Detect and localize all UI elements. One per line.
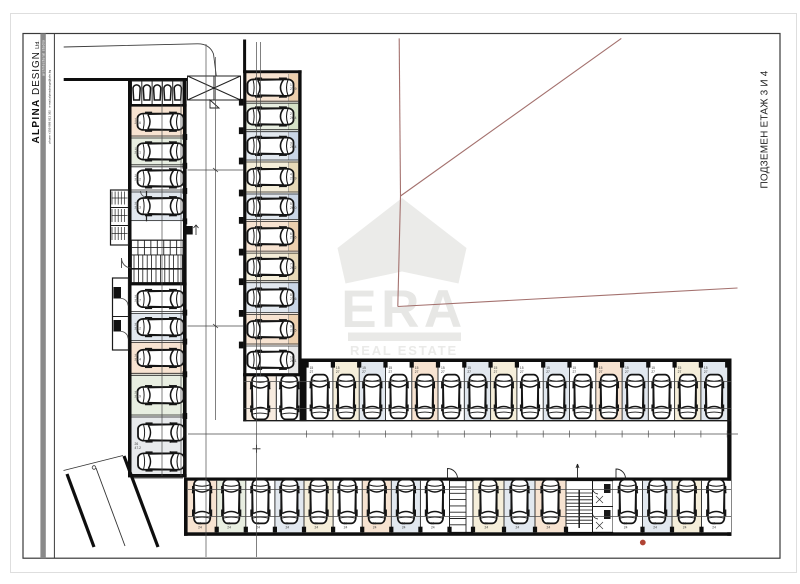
- svg-text:27: 27: [704, 370, 708, 374]
- svg-text:27.5: 27.5: [290, 329, 297, 333]
- svg-text:27: 27: [546, 370, 550, 374]
- svg-text:ALPINADESIGNLtd.: ALPINADESIGNLtd.: [31, 40, 42, 143]
- svg-text:27: 27: [362, 370, 366, 374]
- svg-text:27: 27: [415, 370, 419, 374]
- svg-text:phone +359 888 913 392 e-mai: phone +359 888 913 392 e-mail:alpinadesi…: [47, 70, 51, 144]
- svg-text:27.9: 27.9: [290, 87, 297, 91]
- svg-text:27: 27: [388, 370, 392, 374]
- svg-text:25.7: 25.7: [135, 298, 142, 302]
- svg-text:architectural studio: architectural studio: [42, 40, 46, 76]
- svg-text:24: 24: [344, 525, 348, 529]
- svg-text:24: 24: [315, 525, 319, 529]
- svg-text:24: 24: [198, 525, 202, 529]
- svg-text:26.3: 26.3: [135, 206, 142, 210]
- svg-text:28.9: 28.9: [135, 394, 142, 398]
- svg-text:24: 24: [624, 525, 628, 529]
- svg-text:24: 24: [712, 525, 716, 529]
- svg-text:24: 24: [256, 525, 260, 529]
- svg-text:24: 24: [547, 525, 551, 529]
- svg-text:25.6: 25.6: [135, 121, 142, 125]
- svg-text:27: 27: [651, 370, 655, 374]
- svg-text:27: 27: [467, 370, 471, 374]
- svg-text:24: 24: [431, 525, 435, 529]
- svg-text:47.2: 47.2: [135, 446, 142, 450]
- svg-text:27: 27: [494, 370, 498, 374]
- svg-text:27: 27: [310, 370, 314, 374]
- svg-text:27: 27: [572, 370, 576, 374]
- svg-text:26.2: 26.2: [290, 266, 297, 270]
- svg-text:27: 27: [520, 370, 524, 374]
- svg-text:27: 27: [678, 370, 682, 374]
- svg-text:27.6: 27.6: [290, 297, 297, 301]
- svg-text:27: 27: [336, 370, 340, 374]
- svg-text:24: 24: [516, 525, 520, 529]
- svg-text:27.4: 27.4: [135, 357, 142, 361]
- svg-text:27: 27: [625, 370, 629, 374]
- svg-text:24.2: 24.2: [135, 178, 142, 182]
- svg-text:REAL ESTATE: REAL ESTATE: [350, 343, 458, 358]
- svg-text:26.1: 26.1: [290, 359, 297, 363]
- svg-text:25.2: 25.2: [135, 326, 142, 330]
- svg-text:27: 27: [599, 370, 603, 374]
- svg-text:27.6: 27.6: [290, 236, 297, 240]
- svg-text:25.1: 25.1: [135, 151, 142, 155]
- svg-text:27.9: 27.9: [290, 176, 297, 180]
- svg-text:24: 24: [285, 525, 289, 529]
- svg-text:26.0: 26.0: [290, 206, 297, 210]
- svg-text:24: 24: [373, 525, 377, 529]
- svg-text:26.4: 26.4: [290, 145, 297, 149]
- svg-text:24: 24: [485, 525, 489, 529]
- svg-text:ПОДЗЕМЕН ЕТАЖ 3 И 4: ПОДЗЕМЕН ЕТАЖ 3 И 4: [760, 70, 771, 188]
- svg-text:26.4: 26.4: [290, 116, 297, 120]
- svg-text:27: 27: [441, 370, 445, 374]
- svg-text:24: 24: [683, 525, 687, 529]
- svg-text:24: 24: [402, 525, 406, 529]
- svg-text:24: 24: [227, 525, 231, 529]
- svg-text:ERA: ERA: [341, 280, 466, 339]
- svg-text:24: 24: [653, 525, 657, 529]
